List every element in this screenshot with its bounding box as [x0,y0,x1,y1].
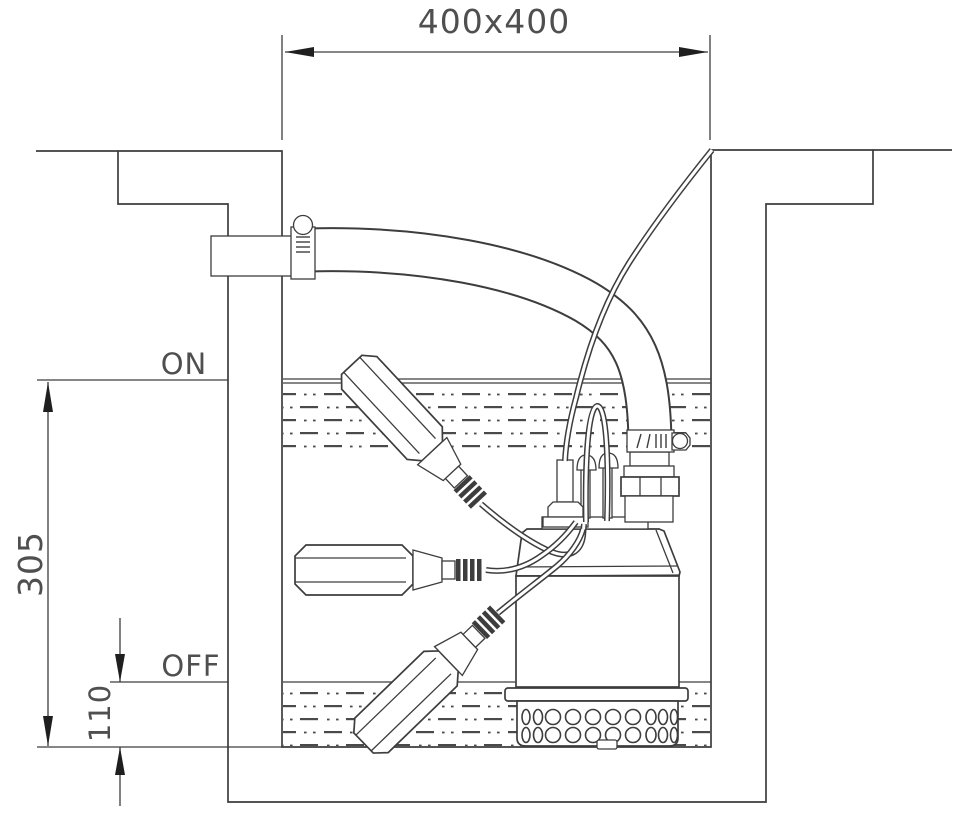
clamp-screw-head [673,434,688,449]
pump-body [516,576,679,687]
on-level-label: ON [161,347,208,381]
gland-stem [557,460,573,502]
coupling-barrel [625,496,673,522]
arrow-right [679,47,708,57]
gland-nut [548,502,583,517]
pump-installation-diagram: 400x400 305 ON 110 OFF [0,0,969,822]
clamp-band [627,430,674,452]
coupling-ring-a [630,452,669,466]
arrow-left [285,47,314,57]
opening-dimension-label: 400x400 [418,2,571,41]
pump-hose-clamp [627,430,690,452]
coupling-ring-b [624,466,674,477]
arrow-110-bottom [115,747,125,775]
pump-cap [516,529,680,576]
arrow-305-bottom [43,716,53,746]
dim-110-label: 110 [83,684,117,742]
arrow-305-top [43,382,53,412]
pump-base-flange [505,688,688,701]
dimension-110: 110 OFF [83,618,228,806]
clamp-screw-head [294,216,313,235]
discharge-pipe [211,236,293,276]
pipe-through-wall [211,236,293,276]
dimension-305: 305 ON [11,347,282,747]
float-switch-mid [295,545,482,595]
dimension-top-opening: 400x400 [282,2,710,140]
wall-hose-clamp [291,216,315,280]
coupling-hex-nut [621,477,679,496]
dim-305-label: 305 [11,531,50,597]
diagram-canvas: 400x400 305 ON 110 OFF [0,0,969,822]
hose-coupling [621,452,679,522]
strainer-clip [597,740,617,749]
off-level-label: OFF [161,649,220,683]
arrow-110-top [115,654,125,682]
